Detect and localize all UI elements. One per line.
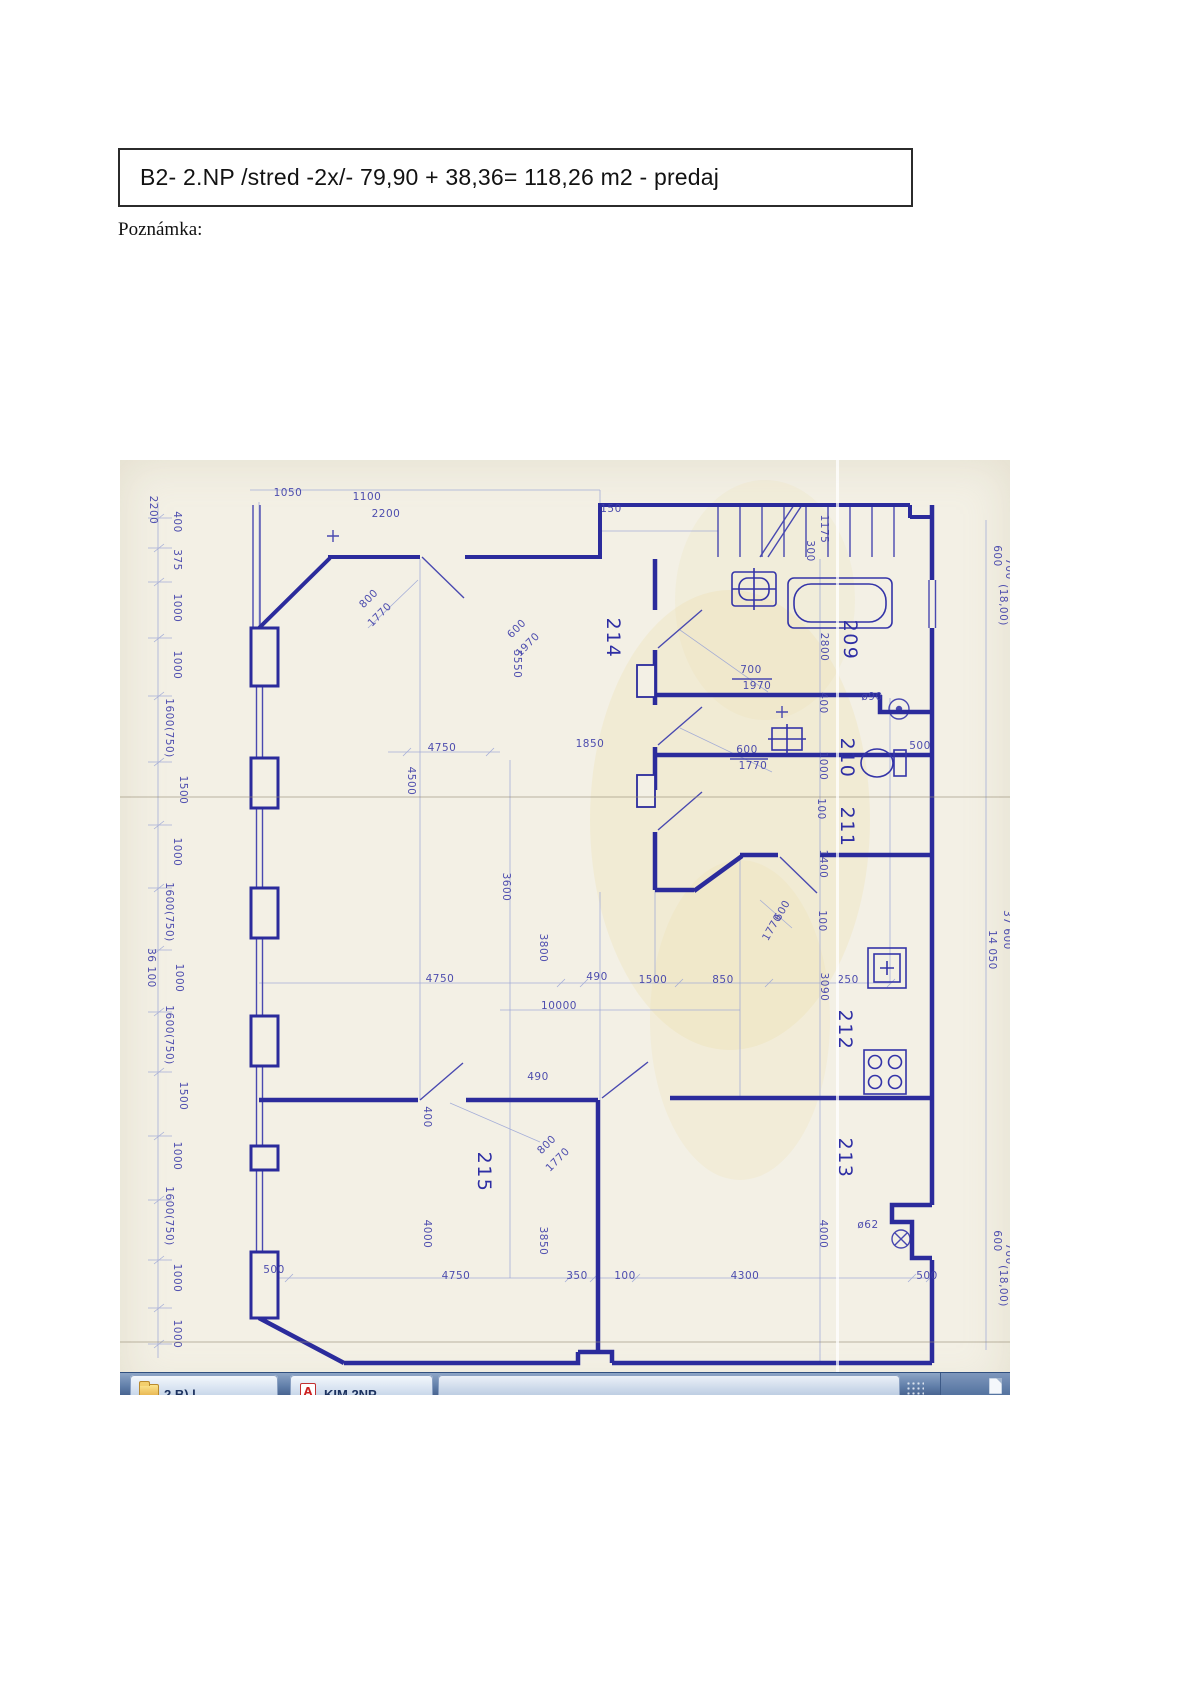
dimension-label: 500 — [909, 740, 931, 752]
dimension-label: 1175 — [818, 515, 830, 544]
dimension-label: 100 — [816, 910, 828, 932]
dimension-label: 1600(750) — [163, 698, 175, 757]
dimension-label: 100 — [614, 1270, 636, 1282]
dimension-label: 250 — [837, 974, 859, 986]
dimension-label: 1600(750) — [163, 1186, 175, 1245]
dimension-label: 490 — [586, 971, 608, 983]
dimension-label: 1970 — [743, 680, 772, 692]
room-number-label: 211 — [836, 807, 858, 848]
taskbar-panel[interactable] — [438, 1375, 900, 1395]
dimension-label: 500 — [916, 1270, 938, 1282]
dimension-label: 14 050 — [986, 930, 998, 970]
dimension-label: 500 — [263, 1264, 285, 1276]
dimension-label: 4300 — [731, 1270, 760, 1282]
dimension-label: 1500 — [177, 1082, 189, 1111]
dimension-label: 400 — [171, 511, 183, 533]
dimension-label: 1000 — [171, 1320, 183, 1349]
page-title: B2- 2.NP /stred -2x/- 79,90 + 38,36= 118… — [120, 164, 719, 191]
dimension-label: 5550 — [511, 650, 523, 679]
dimension-label: 4750 — [428, 742, 457, 754]
dimension-label: 3090 — [818, 973, 830, 1002]
dimension-label: 10000 — [541, 1000, 577, 1012]
document-tray-icon[interactable] — [989, 1378, 1002, 1394]
dimension-label: 1050 — [274, 487, 303, 499]
dimension-label: 100 — [815, 798, 827, 820]
taskbar: 2 B) l A KIM 2NP — [120, 1372, 1010, 1395]
room-number-label: 214 — [602, 618, 624, 659]
dimension-label: 300 — [804, 540, 816, 562]
dimension-label: 4000 — [421, 1220, 433, 1249]
dimension-label: 2200 — [147, 496, 159, 525]
small-sink-icon — [768, 724, 806, 754]
note-label: Poznámka: — [118, 219, 202, 241]
fold-crease — [120, 796, 1010, 798]
dimension-label: 1100 — [353, 491, 382, 503]
dimension-label: 700 — [1003, 558, 1010, 580]
dimension-label: (18,00) — [997, 584, 1009, 626]
dimension-label: 1000 — [171, 651, 183, 680]
taskbar-button-folder[interactable]: 2 B) l — [130, 1375, 278, 1395]
dimension-label: 400 — [817, 692, 829, 714]
dimension-label: ø62 — [857, 1219, 878, 1231]
taskbar-grip-handle[interactable] — [906, 1381, 924, 1395]
dimension-label: 150 — [600, 503, 622, 515]
dimension-label: 1000 — [171, 594, 183, 623]
dimension-label: 1400 — [817, 850, 829, 879]
dimension-label: 4000 — [817, 1220, 829, 1249]
dimension-label: 490 — [527, 1071, 549, 1083]
dimension-label: (18,00) — [997, 1265, 1009, 1307]
dimension-label: 1500 — [639, 974, 668, 986]
dimension-label: 1000 — [171, 1264, 183, 1293]
room-number-label: 209 — [839, 620, 861, 661]
dimension-label: 1000 — [173, 964, 185, 993]
dimension-label: 1850 — [576, 738, 605, 750]
dimension-label: 2800 — [818, 633, 830, 662]
dimension-label: 1000 — [817, 752, 829, 781]
dimension-label: 3800 — [537, 934, 549, 963]
dimension-label: 1600(750) — [163, 1005, 175, 1064]
dimension-label: 600 — [505, 617, 529, 641]
dimension-label: 850 — [712, 974, 734, 986]
dimension-label: 375 — [171, 549, 183, 571]
dimension-label: 600 — [991, 545, 1003, 567]
dimension-label: 600 — [736, 744, 758, 756]
dimension-label: 4500 — [405, 767, 417, 796]
floor-plan-svg: 2200400375100010001600(750)150010001600(… — [120, 460, 1010, 1395]
fold-crease — [120, 1341, 1010, 1343]
dimension-label: ø90 — [861, 691, 882, 703]
taskbar-button-acrobat[interactable]: A KIM 2NP — [290, 1375, 433, 1395]
dimension-label: 350 — [566, 1270, 588, 1282]
acrobat-icon: A — [300, 1383, 316, 1395]
dimension-label: 1500 — [177, 776, 189, 805]
dimension-label: 4750 — [426, 973, 455, 985]
dimension-label: 1770 — [739, 760, 768, 772]
dimension-label: 2200 — [372, 508, 401, 520]
dimension-label: 36 100 — [145, 948, 157, 988]
blueprint-scan: 2200400375100010001600(750)150010001600(… — [120, 460, 1010, 1395]
kitchen-sink-icon — [868, 948, 906, 988]
dimension-label: 1000 — [171, 838, 183, 867]
dimension-label: 400 — [421, 1106, 433, 1128]
dimension-label: 37 600 — [1001, 910, 1010, 950]
room-number-label: 215 — [473, 1152, 495, 1193]
room-number-label: 210 — [836, 738, 858, 779]
dimension-label: 1600(750) — [163, 882, 175, 941]
dimension-label: 700 — [740, 664, 762, 676]
taskbar-button-label: 2 B) l — [164, 1387, 196, 1395]
fold-crease — [836, 460, 839, 1395]
dimension-label: 1000 — [171, 1142, 183, 1171]
folder-icon — [139, 1384, 159, 1395]
dimension-label: 4750 — [442, 1270, 471, 1282]
dimension-label: 700 — [1003, 1243, 1010, 1265]
dimension-label: 3850 — [537, 1227, 549, 1256]
dimension-label: 3600 — [500, 873, 512, 902]
taskbar-button-label: KIM 2NP — [324, 1387, 377, 1395]
dimension-label: 800 — [357, 587, 381, 611]
dimension-label: 600 — [991, 1230, 1003, 1252]
stove-icon — [864, 1050, 906, 1094]
title-box: B2- 2.NP /stred -2x/- 79,90 + 38,36= 118… — [118, 148, 913, 207]
system-tray — [940, 1373, 1010, 1395]
